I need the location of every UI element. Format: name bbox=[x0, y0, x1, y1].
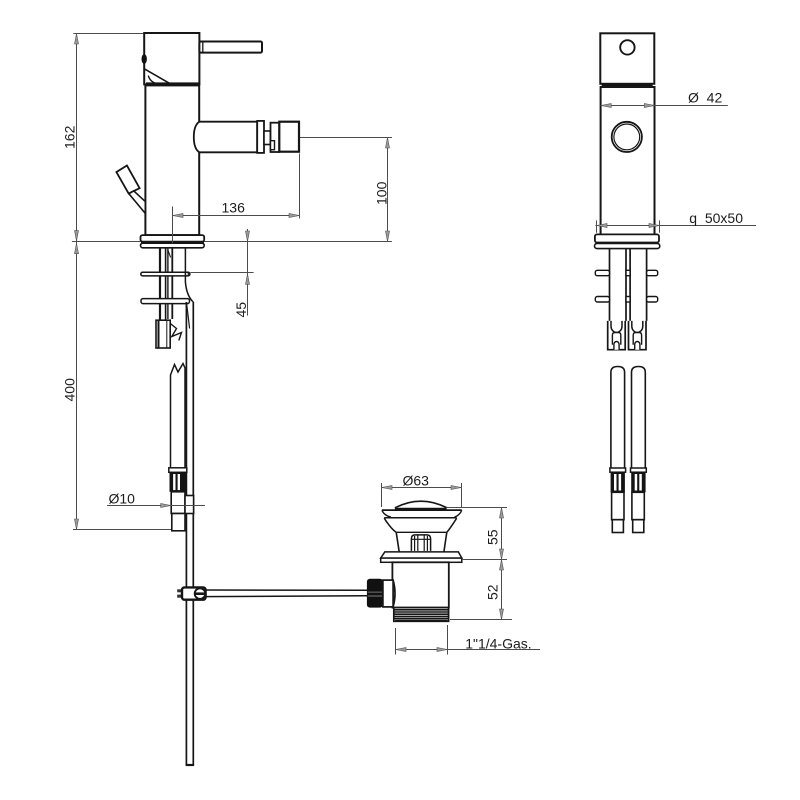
svg-text:Ø 42: Ø 42 bbox=[688, 90, 722, 106]
svg-text:162: 162 bbox=[62, 125, 78, 149]
svg-text:400: 400 bbox=[62, 378, 78, 402]
svg-text:45: 45 bbox=[233, 302, 249, 318]
svg-text:52: 52 bbox=[485, 584, 501, 600]
svg-text:Ø63: Ø63 bbox=[403, 473, 430, 489]
svg-text:1"1/4-Gas.: 1"1/4-Gas. bbox=[465, 635, 531, 651]
svg-text:100: 100 bbox=[374, 181, 390, 205]
svg-text:q 50x50: q 50x50 bbox=[689, 210, 743, 226]
svg-text:55: 55 bbox=[485, 529, 501, 545]
svg-text:136: 136 bbox=[222, 200, 246, 216]
svg-text:Ø10: Ø10 bbox=[109, 491, 136, 507]
